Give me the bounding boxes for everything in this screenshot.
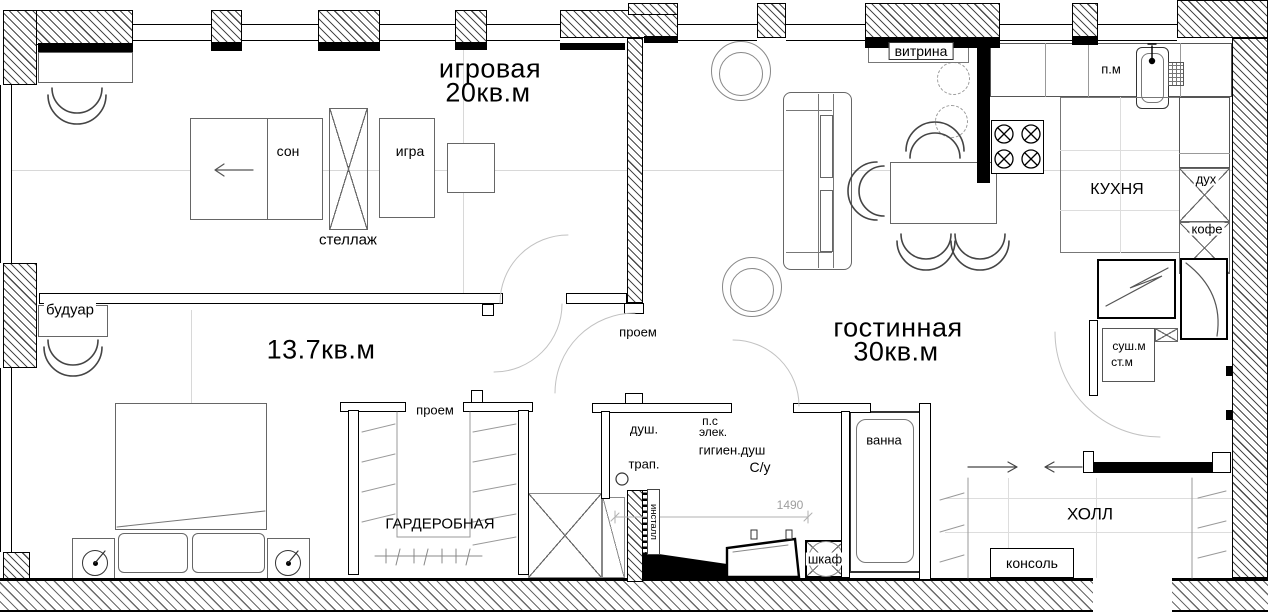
closet-crossed	[528, 493, 602, 578]
wall	[455, 10, 487, 43]
toilet-line	[733, 545, 788, 552]
label-installation: инсталл	[647, 489, 660, 555]
shower-wall	[601, 411, 610, 499]
wall-accent	[211, 43, 242, 51]
slide-arrow-icon	[968, 462, 1082, 472]
plant-icon	[719, 52, 763, 96]
laundry-wall	[1089, 320, 1098, 396]
label-bath: ванна	[864, 434, 904, 447]
pillow	[118, 533, 188, 573]
lamp-icon	[275, 550, 301, 576]
pillow	[192, 533, 265, 573]
sink-basin	[1141, 53, 1164, 103]
hall-floor-line	[945, 498, 1232, 499]
sofa-cushion	[820, 190, 833, 252]
door-jamb	[482, 304, 494, 316]
room-label-kitchen: КУХНЯ	[1090, 182, 1143, 198]
window	[380, 24, 455, 41]
plant-icon	[935, 105, 968, 138]
wall	[1072, 3, 1098, 37]
counter-divider	[1045, 43, 1046, 97]
side-table	[447, 143, 495, 193]
sofa-line	[833, 94, 834, 268]
window	[1098, 24, 1177, 41]
plant-icon	[937, 62, 970, 95]
daybed-divider	[267, 118, 268, 220]
wc-wall-tab	[625, 393, 643, 404]
partition-shelf	[566, 293, 627, 304]
wall-central	[627, 38, 643, 303]
flush-button	[751, 530, 792, 539]
wall-accent	[644, 36, 678, 43]
vent-box	[1155, 328, 1178, 342]
room-label-wardrobe: ГАРДЕРОБНАЯ	[385, 517, 494, 532]
floor-plan: игровая 20кв.м 13.7кв.м гостинная 30кв.м…	[0, 0, 1268, 612]
wall-accent	[38, 43, 133, 52]
sliding-door-jamb	[1212, 452, 1231, 473]
label-sleep: сон	[277, 144, 300, 158]
wall	[1172, 578, 1268, 612]
hall-floor-line	[945, 532, 1232, 533]
cabinet-line	[1179, 153, 1230, 154]
bath-wall	[793, 403, 871, 413]
wardrobe-wall	[518, 410, 529, 575]
bed	[115, 403, 267, 530]
window	[0, 85, 12, 263]
wall-accent	[455, 43, 487, 50]
fridge	[1180, 258, 1228, 340]
bath-wall	[919, 403, 931, 580]
wardrobe-wall	[348, 410, 359, 575]
wall	[211, 10, 242, 43]
label-display-case: витрина	[889, 42, 954, 60]
window	[678, 24, 757, 41]
window	[487, 24, 560, 41]
label-wc: С/у	[750, 460, 771, 474]
wall	[3, 10, 37, 85]
sliding-door-panel	[1093, 462, 1212, 473]
wall-black-kitchen	[977, 43, 990, 183]
daybed-sleep	[190, 118, 323, 220]
label-play: игра	[396, 144, 425, 158]
toilet	[727, 539, 799, 577]
label-oven: дух	[1194, 173, 1219, 186]
window	[242, 24, 318, 41]
label-opening-center: проем	[619, 326, 657, 339]
desk	[38, 52, 133, 83]
wall-bath	[627, 490, 643, 582]
label-coffee: кофе	[1190, 223, 1225, 236]
wall	[628, 3, 678, 15]
wall-accent	[1072, 37, 1098, 45]
wall	[865, 3, 1000, 38]
label-dimension: 1490	[777, 499, 804, 511]
label-dishwasher: п.м	[1101, 63, 1121, 76]
tall-cabinet	[1179, 97, 1230, 168]
hall-closet	[940, 478, 1226, 578]
wall	[757, 3, 786, 38]
play-couch	[379, 118, 435, 218]
label-console: консоль	[1006, 556, 1058, 570]
room-area-bedroom: 13.7кв.м	[267, 337, 376, 364]
wall	[318, 10, 380, 43]
label-boudoir: будуар	[44, 303, 96, 318]
partition-shelf	[39, 293, 503, 304]
window	[0, 368, 12, 552]
shelving-unit	[329, 108, 368, 230]
sofa-armrest	[786, 110, 832, 111]
label-opening-wardrobe: проем	[416, 404, 454, 417]
lamp-icon	[82, 550, 108, 576]
wall	[0, 578, 1093, 612]
wall-cap	[624, 303, 644, 314]
closet-narrow	[602, 497, 625, 578]
hall-floor-line	[1096, 478, 1097, 578]
drying-rack-icon	[1168, 62, 1184, 86]
label-hygienic-shower: гигиен.душ	[699, 444, 766, 457]
counter-divider	[1088, 43, 1089, 97]
label-cabinet: шкаф	[806, 553, 844, 566]
room-area-livingroom: 30кв.м	[853, 339, 938, 366]
label-drain: трап.	[628, 458, 659, 471]
label-washer: ст.м	[1111, 356, 1133, 368]
room-label-hall: ХОЛЛ	[1067, 506, 1113, 523]
label-shower: душ.	[630, 423, 658, 436]
label-elec: элек.	[699, 426, 727, 438]
room-area-playroom: 20кв.м	[445, 80, 530, 107]
island-line	[1120, 97, 1121, 253]
step-wedge	[645, 552, 727, 578]
sofa-cushion	[820, 115, 833, 178]
sofa-armrest	[786, 252, 832, 253]
shoe-rack	[375, 549, 482, 565]
freezer	[1097, 259, 1176, 319]
window	[133, 24, 211, 41]
wall	[1177, 0, 1268, 38]
plant-icon	[730, 268, 774, 312]
wardrobe-jamb	[471, 390, 483, 403]
wall	[1232, 38, 1268, 578]
sofa-line	[818, 94, 819, 268]
label-dryer: суш.м	[1112, 340, 1145, 352]
wall-accent	[318, 43, 380, 51]
wall	[3, 263, 37, 368]
window	[786, 24, 865, 41]
wc-wall	[592, 403, 732, 413]
wall-accent	[560, 43, 625, 50]
label-shelving: стеллаж	[319, 233, 377, 248]
projection-line-vertical-2	[191, 310, 192, 403]
stove	[991, 120, 1044, 174]
window	[1000, 24, 1072, 41]
drain-icon	[616, 473, 628, 485]
